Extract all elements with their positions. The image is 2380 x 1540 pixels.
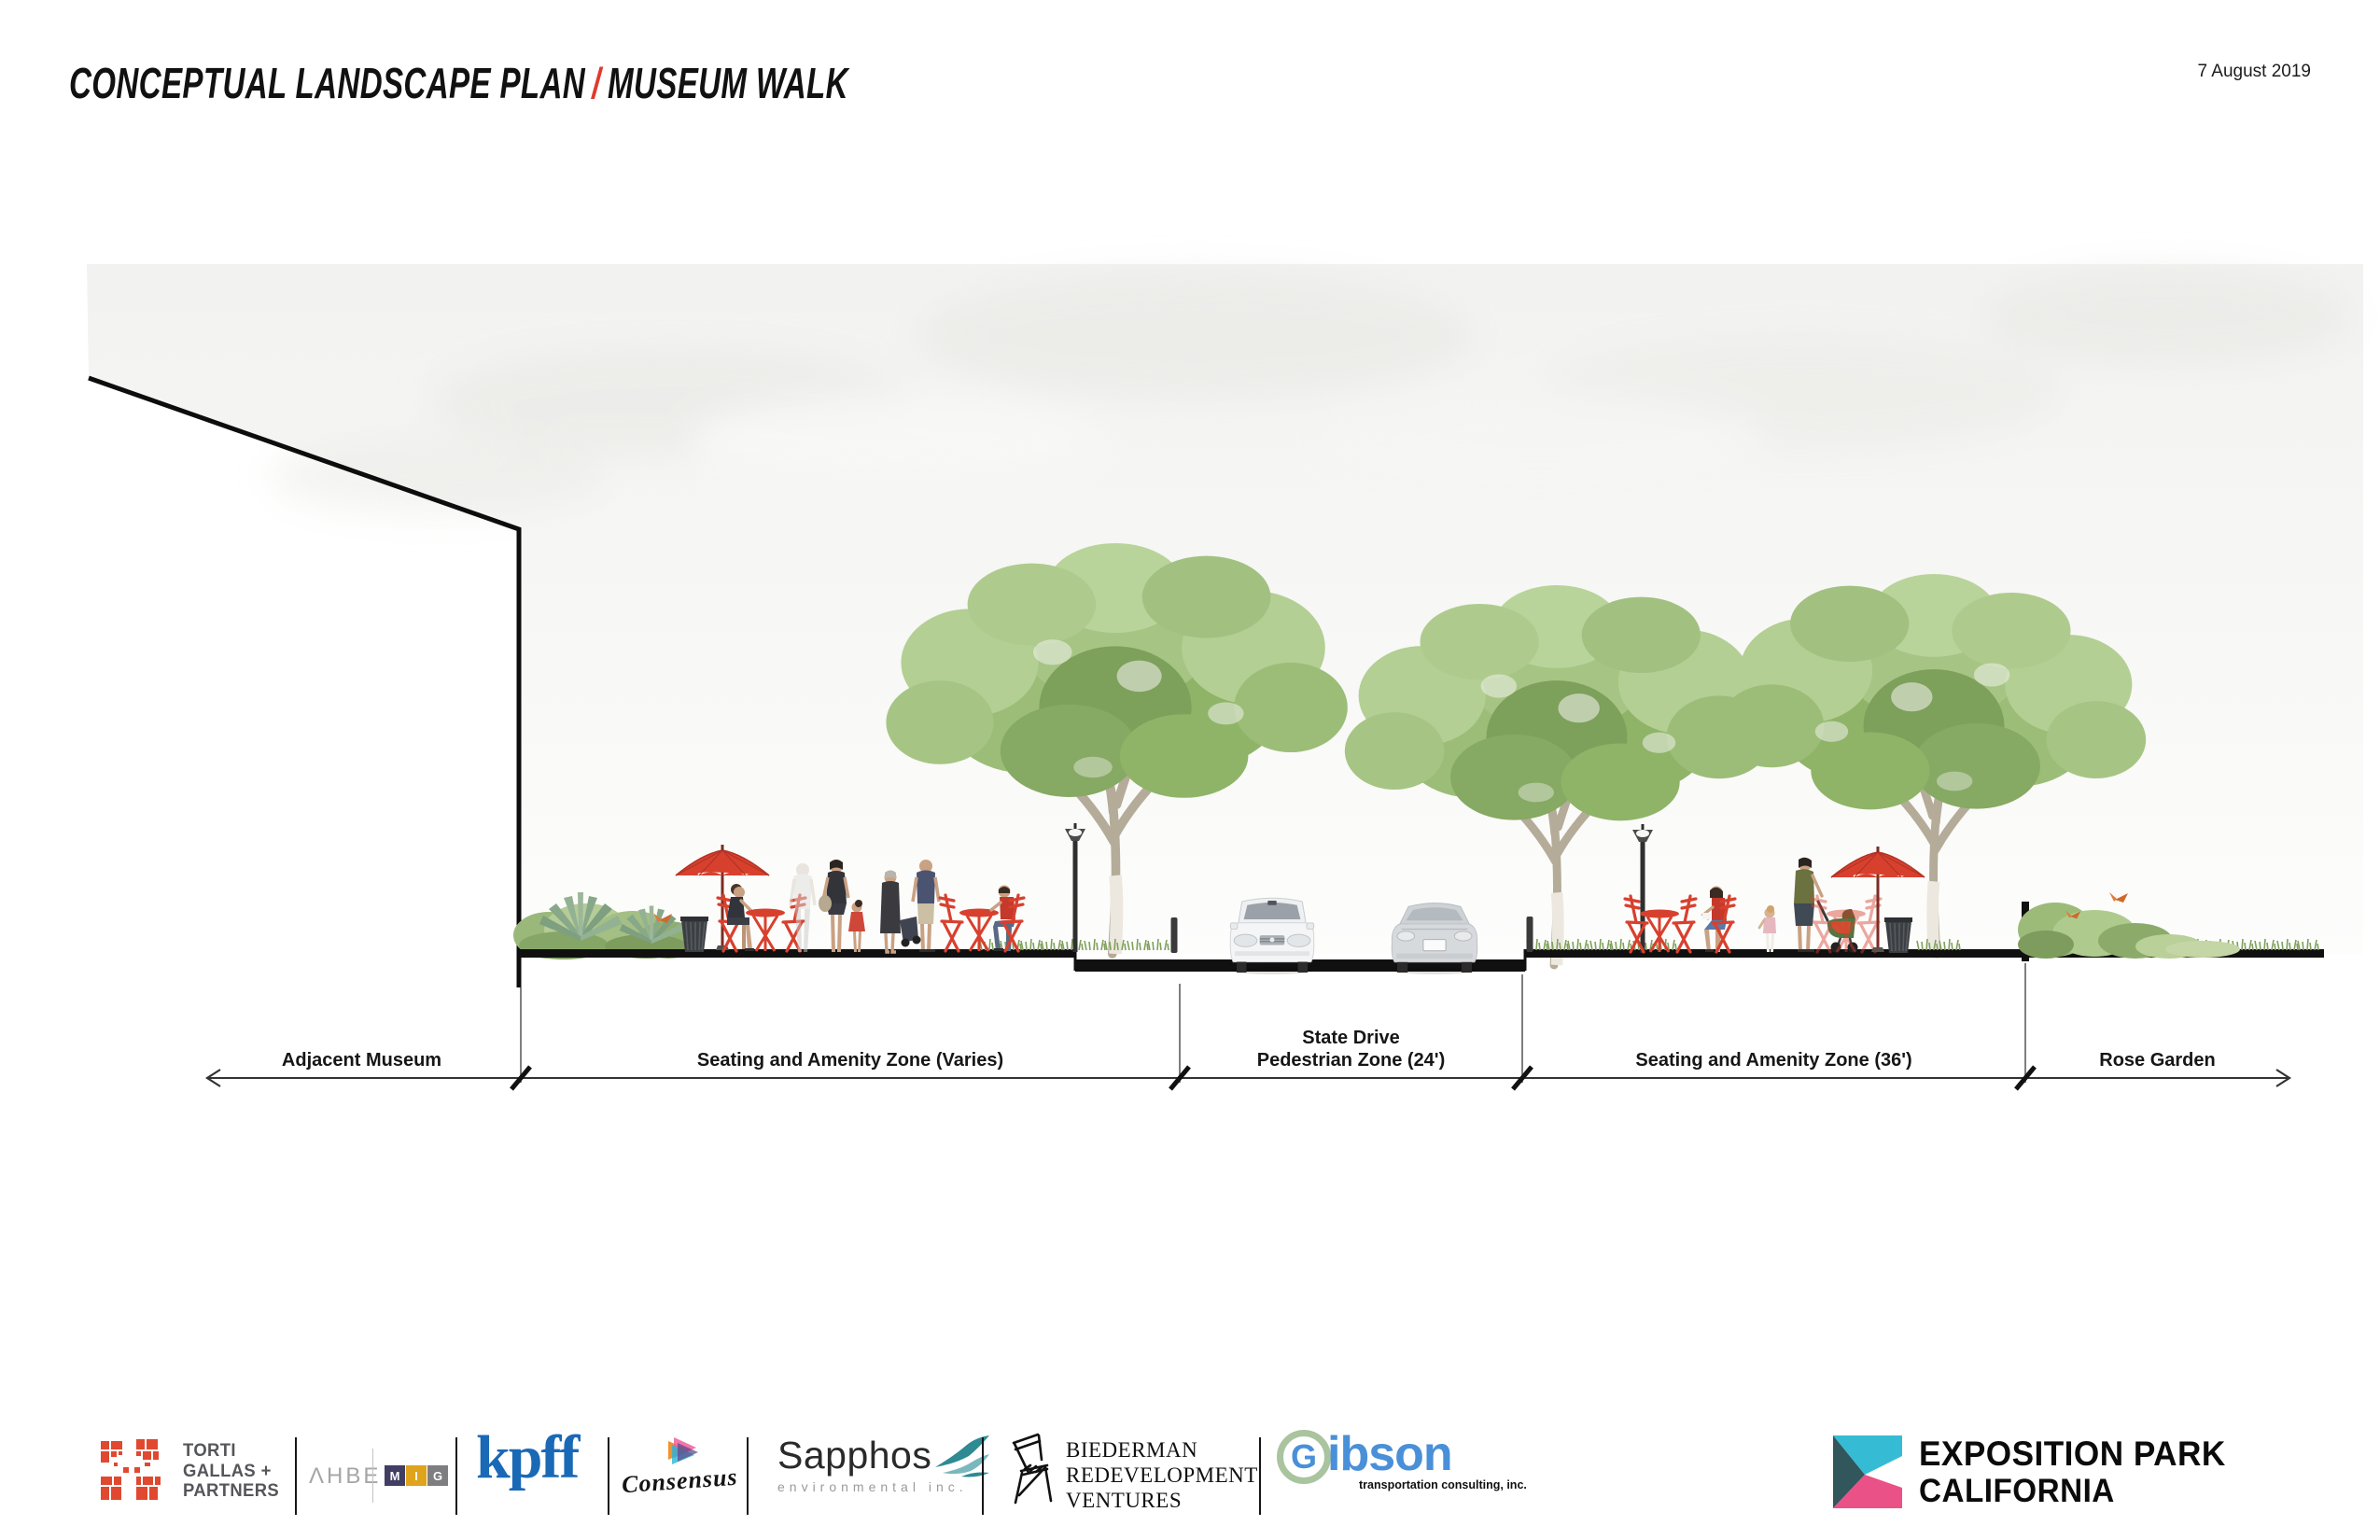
torti-mosaic-icon <box>101 1439 162 1506</box>
logo-consensus: Consensus <box>622 1435 745 1495</box>
folding-chair-icon <box>1006 1432 1053 1506</box>
logo-ahbe: ΛHBE <box>309 1463 381 1490</box>
section-rendering <box>0 0 2380 1540</box>
divider <box>982 1437 984 1515</box>
bollard-icon <box>1171 917 1178 953</box>
zone-label-state-drive: State Drive Pedestrian Zone (24') <box>1180 1025 1522 1071</box>
logo-kpff: kpff <box>476 1422 578 1493</box>
logo-mig: M I G <box>385 1465 448 1486</box>
divider <box>608 1437 609 1515</box>
gibson-g-icon: G <box>1277 1430 1331 1484</box>
presentation-sheet: CONCEPTUAL LANDSCAPE PLAN/MUSEUM WALK 7 … <box>0 0 2380 1540</box>
divider <box>455 1437 457 1515</box>
date-label: 7 August 2019 <box>2128 62 2311 82</box>
divider <box>295 1437 297 1515</box>
divider <box>747 1437 749 1515</box>
page-title: CONCEPTUAL LANDSCAPE PLAN/MUSEUM WALK <box>69 58 848 108</box>
consensus-triangles-icon <box>666 1435 704 1467</box>
zone-label-seating-36: Seating and Amenity Zone (36') <box>1522 1025 2025 1071</box>
logo-sapphos: Sapphos environmental inc. <box>777 1434 991 1494</box>
title-separator: / <box>585 59 608 107</box>
trash-can-icon <box>1884 917 1912 953</box>
bollard-icon <box>1527 917 1533 952</box>
title-sub: MUSEUM WALK <box>608 59 848 107</box>
trash-can-icon <box>680 917 708 952</box>
zone-label-adjacent-museum: Adjacent Museum <box>203 1025 521 1071</box>
zone-label-rose-garden: Rose Garden <box>2025 1025 2289 1071</box>
exposition-park-mark-icon <box>1833 1435 1902 1508</box>
title-main: CONCEPTUAL LANDSCAPE PLAN <box>69 59 585 107</box>
logo-torti-gallas: TORTI GALLAS + PARTNERS <box>101 1439 282 1506</box>
zone-label-seating-varies: Seating and Amenity Zone (Varies) <box>521 1025 1180 1071</box>
logo-exposition-park: EXPOSITION PARK CALIFORNIA <box>1833 1435 2242 1510</box>
logo-biederman: BIEDERMAN REDEVELOPMENT VENTURES <box>1006 1432 1258 1513</box>
divider <box>1259 1437 1261 1515</box>
divider <box>372 1449 373 1503</box>
